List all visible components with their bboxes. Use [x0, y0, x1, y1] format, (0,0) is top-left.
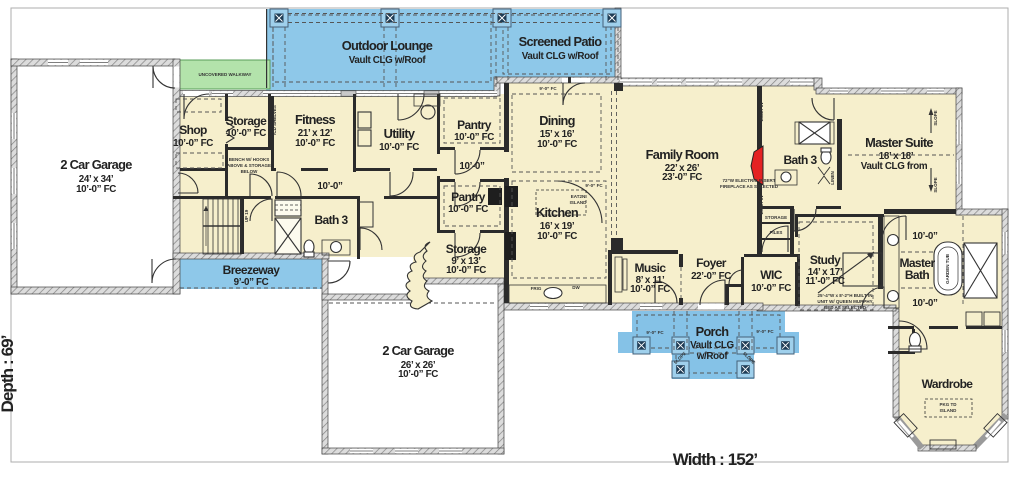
svg-text:10’-0” FC: 10’-0” FC: [295, 138, 335, 149]
svg-text:Vault CLG w/Roof: Vault CLG w/Roof: [522, 51, 600, 62]
svg-text:10’-0” FC: 10’-0” FC: [630, 284, 670, 295]
svg-text:10’-0” FC: 10’-0” FC: [173, 138, 213, 149]
svg-text:72”W ELECTRIC INSERT: 72”W ELECTRIC INSERT: [722, 178, 775, 183]
svg-text:Vault CLG: Vault CLG: [690, 340, 734, 351]
svg-text:w/Roof: w/Roof: [696, 351, 729, 362]
svg-text:10’-0” FC: 10’-0” FC: [454, 132, 494, 143]
svg-text:11’-0” FC: 11’-0” FC: [805, 276, 845, 287]
svg-text:Storage: Storage: [226, 114, 267, 128]
svg-text:BUILT IN: BUILT IN: [759, 196, 764, 215]
svg-text:10’-0” FC: 10’-0” FC: [448, 204, 488, 215]
svg-text:BENCH W/ HOOKS: BENCH W/ HOOKS: [229, 157, 270, 162]
svg-text:10’-0” FC: 10’-0” FC: [751, 283, 791, 294]
svg-text:Kitchen: Kitchen: [536, 205, 579, 220]
svg-text:Study: Study: [810, 253, 841, 267]
svg-text:ABOVE & STORAGE: ABOVE & STORAGE: [227, 163, 271, 168]
svg-text:25’-4”W x 8’-2”H BUILT IN: 25’-4”W x 8’-2”H BUILT IN: [818, 293, 873, 298]
svg-text:Master Suite: Master Suite: [865, 135, 933, 150]
svg-text:Vault CLG from: Vault CLG from: [861, 161, 928, 172]
svg-text:Vault CLG w/Roof: Vault CLG w/Roof: [349, 55, 427, 66]
svg-text:Pantry: Pantry: [457, 118, 492, 132]
svg-text:BUILT IN: BUILT IN: [759, 103, 764, 122]
svg-text:9’-0” FC: 9’-0” FC: [539, 86, 557, 91]
svg-text:Width : 152’: Width : 152’: [673, 450, 758, 469]
svg-text:23’-0” FC: 23’-0” FC: [662, 172, 702, 183]
svg-text:Dining: Dining: [539, 113, 575, 128]
svg-text:Utility: Utility: [384, 126, 416, 141]
svg-text:Pantry: Pantry: [451, 190, 486, 204]
svg-text:STORAGE: STORAGE: [765, 215, 787, 220]
svg-text:Bath 3: Bath 3: [783, 153, 817, 167]
svg-text:Screened Patio: Screened Patio: [519, 34, 603, 49]
svg-text:9’-0” FC: 9’-0” FC: [585, 183, 603, 188]
svg-text:22’-0” FC: 22’-0” FC: [691, 271, 731, 282]
svg-text:LINEN: LINEN: [830, 171, 835, 185]
svg-text:Depth : 69’: Depth : 69’: [0, 335, 17, 412]
svg-text:10’-0” FC: 10’-0” FC: [537, 139, 577, 150]
svg-text:10’-0”: 10’-0”: [459, 161, 485, 172]
svg-text:BED AS SELECTED: BED AS SELECTED: [824, 305, 867, 310]
svg-text:SLOPE: SLOPE: [933, 177, 938, 192]
svg-text:10’-0” FC: 10’-0” FC: [379, 142, 419, 153]
svg-text:DW: DW: [572, 285, 580, 290]
svg-text:UP 19: UP 19: [244, 209, 249, 222]
svg-text:UNCOVERED WALKWAY: UNCOVERED WALKWAY: [198, 72, 251, 77]
svg-text:Storage: Storage: [446, 242, 487, 256]
svg-text:Breezeway: Breezeway: [223, 263, 281, 277]
svg-text:Music: Music: [634, 261, 666, 275]
svg-text:UNIT W/ QUEEN MURPHY: UNIT W/ QUEEN MURPHY: [817, 299, 872, 304]
svg-text:WIC: WIC: [760, 268, 782, 282]
svg-text:FIREPLACE AS SELECTED: FIREPLACE AS SELECTED: [720, 184, 779, 189]
svg-text:2 Car Garage: 2 Car Garage: [382, 343, 454, 358]
svg-text:9’-0” FC: 9’-0” FC: [646, 330, 664, 335]
svg-text:BELOW: BELOW: [241, 169, 259, 174]
svg-text:ICD SHELVES: ICD SHELVES: [272, 105, 277, 135]
svg-text:Foyer: Foyer: [696, 256, 727, 270]
svg-text:FILES: FILES: [770, 230, 783, 235]
svg-text:Bath: Bath: [905, 268, 930, 282]
svg-text:9’-0” FC: 9’-0” FC: [234, 277, 269, 288]
svg-text:Outdoor Lounge: Outdoor Lounge: [342, 38, 433, 53]
svg-text:PKG TD: PKG TD: [939, 402, 957, 407]
svg-text:10’-0”: 10’-0”: [317, 181, 343, 192]
svg-text:ISLAND: ISLAND: [570, 200, 588, 205]
svg-text:10’-0” FC: 10’-0” FC: [226, 128, 266, 139]
svg-text:10’-0” FC: 10’-0” FC: [537, 231, 577, 242]
svg-text:Wardrobe: Wardrobe: [922, 377, 974, 391]
svg-text:GARDEN TUB: GARDEN TUB: [945, 253, 950, 284]
svg-text:SLOPE: SLOPE: [933, 110, 938, 125]
svg-text:10’-0”: 10’-0”: [912, 298, 938, 309]
svg-text:2 Car Garage: 2 Car Garage: [60, 157, 132, 172]
svg-text:Porch: Porch: [696, 324, 730, 339]
svg-text:10’-0” FC: 10’-0” FC: [446, 265, 486, 276]
svg-text:9’-0” FC: 9’-0” FC: [756, 329, 774, 334]
svg-text:Bath 3: Bath 3: [314, 213, 348, 227]
svg-text:10’-0” FC: 10’-0” FC: [398, 369, 438, 380]
svg-text:10’-0”: 10’-0”: [912, 231, 938, 242]
svg-text:Fitness: Fitness: [295, 112, 335, 127]
svg-text:FRIG: FRIG: [531, 286, 542, 291]
svg-text:10’-0” FC: 10’-0” FC: [76, 184, 116, 195]
svg-text:Family Room: Family Room: [646, 147, 719, 162]
svg-text:EAT2N: EAT2N: [571, 194, 585, 199]
svg-text:Shop: Shop: [179, 123, 207, 137]
svg-text:ISLAND: ISLAND: [940, 408, 958, 413]
